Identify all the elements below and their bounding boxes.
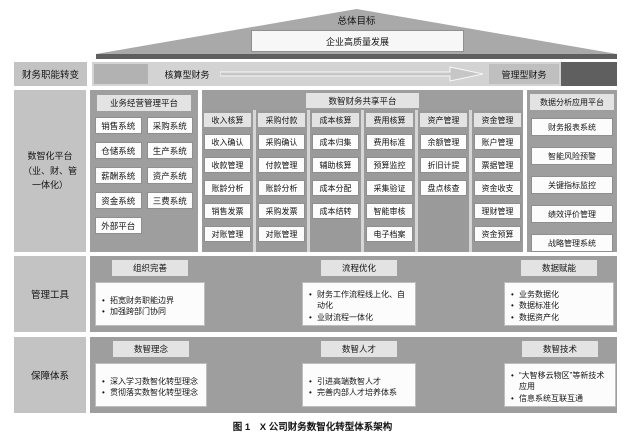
overall-goal-label: 总体目标 — [96, 13, 617, 27]
function-shift-bar: 核算型财务 管理型财务 — [92, 62, 617, 86]
bullet-item: 完善内部人才培养体系 — [309, 387, 411, 398]
shared-column-header: 资金管理 — [474, 113, 521, 127]
bullet-item: 信息系统互联互通 — [511, 393, 611, 404]
roof-beam — [96, 54, 617, 59]
tools-group-box: 拓宽财务职能边界 加强跨部门协同 — [95, 282, 205, 326]
bullet-item: 数据资产化 — [511, 312, 609, 323]
shared-item: 收款管理 — [204, 157, 251, 173]
accounting-finance-label: 核算型财务 — [152, 62, 222, 86]
shared-column-header: 资产管理 — [420, 113, 467, 127]
shared-item: 资金预算 — [474, 226, 521, 242]
shared-column-asset: 资产管理 余额管理 折旧计提 盘点核查 — [418, 110, 469, 252]
bullet-item: 业务数据化 — [511, 289, 609, 300]
shared-item: 智能审核 — [366, 203, 413, 219]
guarantee-group-title: 数智人才 — [321, 341, 397, 357]
shared-item: 账户管理 — [474, 134, 521, 150]
bullet-item: 业财流程一体化 — [309, 312, 411, 323]
data-item: 智能风险预警 — [531, 147, 613, 165]
platform-side-line: 数智化平台 — [23, 149, 77, 163]
shared-platform-title: 数智财务共享平台 — [306, 93, 419, 108]
figure-page: 总体目标 企业高质量发展 财务职能转变 核算型财务 管理型财务 数智化平台 （业… — [0, 0, 625, 439]
tools-group-box: 业务数据化 数据标准化 数据资产化 — [504, 282, 614, 326]
business-item: 采购系统 — [147, 117, 194, 134]
shared-item: 电子档案 — [366, 226, 413, 242]
business-platform-title: 业务经营管理平台 — [97, 95, 191, 111]
shared-column-header: 收入核算 — [204, 113, 251, 127]
shared-item: 成本分配 — [312, 180, 359, 196]
bullet-item: 财务工作流程线上化、自动化 — [309, 289, 411, 311]
shared-item: 账龄分析 — [204, 180, 251, 196]
shared-item: 成本结转 — [312, 203, 359, 219]
guarantee-group-title: 数智技术 — [522, 341, 598, 357]
guarantee-group-technology: 数智技术 “大智移云物区”等新技术应用 信息系统互联互通 — [504, 337, 616, 413]
platform-side-label: 数智化平台 （业、财、管 一体化） — [14, 90, 86, 252]
business-item: 仓储系统 — [95, 142, 142, 159]
business-item: 薪酬系统 — [95, 167, 142, 184]
tools-side-label: 管理工具 — [14, 256, 86, 332]
shared-item: 成本归集 — [312, 134, 359, 150]
function-shift-side-label: 财务职能转变 — [14, 62, 87, 86]
business-items-grid: 销售系统 采购系统 仓储系统 生产系统 薪酬系统 资产系统 资金系统 三费系统 … — [95, 117, 193, 234]
shared-item: 对账管理 — [204, 226, 251, 242]
bullet-item: 数据标准化 — [511, 300, 609, 311]
shared-item: 资金收支 — [474, 180, 521, 196]
tools-group-data: 数据赋能 业务数据化 数据标准化 数据资产化 — [504, 256, 614, 332]
tools-group-title: 数据赋能 — [521, 260, 597, 276]
business-platform-panel: 业务经营管理平台 销售系统 采购系统 仓储系统 生产系统 薪酬系统 资产系统 资… — [90, 90, 198, 252]
shared-item: 预算监控 — [366, 157, 413, 173]
shared-item: 辅助核算 — [312, 157, 359, 173]
shared-column-header: 采购付款 — [258, 113, 305, 127]
business-item: 外部平台 — [95, 217, 142, 234]
bullet-item: 拓宽财务职能边界 — [102, 295, 200, 306]
guarantee-group-concept: 数智理念 深入学习数智化转型理念 贯彻落实数智化转型理念 — [95, 337, 207, 413]
management-finance-label: 管理型财务 — [489, 64, 559, 84]
shared-item: 账龄分析 — [258, 180, 305, 196]
shift-start-block — [94, 64, 148, 84]
shared-item: 销售发票 — [204, 203, 251, 219]
shared-item: 采购确认 — [258, 134, 305, 150]
business-item: 资产系统 — [147, 167, 194, 184]
shift-end-block — [561, 62, 617, 86]
data-item: 财务报表系统 — [531, 118, 613, 136]
shared-column-procurement: 采购付款 采购确认 付款管理 账龄分析 采购发票 对账管理 — [256, 110, 307, 252]
shared-item: 折旧计提 — [420, 157, 467, 173]
data-item: 战略管理系统 — [531, 234, 613, 252]
tools-group-title: 流程优化 — [321, 260, 397, 276]
right-arrow-icon — [220, 65, 486, 83]
shared-item: 对账管理 — [258, 226, 305, 242]
business-item: 三费系统 — [147, 192, 194, 209]
guarantee-side-label: 保障体系 — [14, 337, 86, 413]
platform-side-line: 一体化） — [23, 178, 77, 192]
shared-item: 票据管理 — [474, 157, 521, 173]
bullet-item: 贯彻落实数智化转型理念 — [102, 387, 202, 398]
bullet-item: 深入学习数智化转型理念 — [102, 376, 202, 387]
guarantee-group-title: 数智理念 — [113, 341, 189, 357]
guarantee-group-box: 深入学习数智化转型理念 贯彻落实数智化转型理念 — [95, 363, 207, 407]
business-item: 资金系统 — [95, 192, 142, 209]
tools-group-title: 组织完善 — [112, 260, 188, 276]
shared-item: 付款管理 — [258, 157, 305, 173]
shared-item: 采购发票 — [258, 203, 305, 219]
shared-item: 收入确认 — [204, 134, 251, 150]
tools-group-box: 财务工作流程线上化、自动化 业财流程一体化 — [302, 282, 416, 326]
shared-column-expense: 费用核算 费用标准 预算监控 采集验证 智能审核 电子档案 — [364, 110, 415, 252]
data-platform-panel: 数据分析应用平台 财务报表系统 智能风险预警 关键指标监控 绩效评价管理 战略管… — [527, 90, 617, 252]
data-item: 绩效评价管理 — [531, 205, 613, 223]
shared-column-revenue: 收入核算 收入确认 收款管理 账龄分析 销售发票 对账管理 — [202, 110, 253, 252]
business-item: 销售系统 — [95, 117, 142, 134]
goal-box: 企业高质量发展 — [251, 30, 464, 52]
guarantee-group-talent: 数智人才 引进高端数智人才 完善内部人才培养体系 — [302, 337, 416, 413]
shared-columns: 收入核算 收入确认 收款管理 账龄分析 销售发票 对账管理 采购付款 采购确认 … — [202, 110, 523, 252]
shared-item: 理财管理 — [474, 203, 521, 219]
figure-caption: 图 1 X 公司财务数智化转型体系架构 — [0, 419, 625, 433]
shared-item: 盘点核查 — [420, 180, 467, 196]
tools-band: 组织完善 拓宽财务职能边界 加强跨部门协同 流程优化 财务工作流程线上化、自动化… — [90, 256, 617, 332]
shared-item: 费用标准 — [366, 134, 413, 150]
bullet-item: 加强跨部门协同 — [102, 306, 200, 317]
shared-column-capital: 资金管理 账户管理 票据管理 资金收支 理财管理 资金预算 — [472, 110, 523, 252]
shared-column-header: 成本核算 — [312, 113, 359, 127]
tools-group-process: 流程优化 财务工作流程线上化、自动化 业财流程一体化 — [302, 256, 416, 332]
platform-side-line: （业、财、管 — [23, 164, 77, 178]
shared-column-cost: 成本核算 成本归集 辅助核算 成本分配 成本结转 — [310, 110, 361, 252]
shared-column-header: 费用核算 — [366, 113, 413, 127]
guarantee-band: 数智理念 深入学习数智化转型理念 贯彻落实数智化转型理念 数智人才 引进高端数智… — [90, 337, 617, 413]
bullet-item: 引进高端数智人才 — [309, 376, 411, 387]
shared-item: 余额管理 — [420, 134, 467, 150]
shared-platform-panel: 数智财务共享平台 收入核算 收入确认 收款管理 账龄分析 销售发票 对账管理 采… — [202, 90, 523, 252]
bullet-item: “大智移云物区”等新技术应用 — [511, 370, 611, 392]
guarantee-group-box: “大智移云物区”等新技术应用 信息系统互联互通 — [504, 363, 616, 407]
data-platform-items: 财务报表系统 智能风险预警 关键指标监控 绩效评价管理 战略管理系统 — [531, 118, 613, 252]
data-platform-title: 数据分析应用平台 — [530, 94, 614, 110]
data-item: 关键指标监控 — [531, 176, 613, 194]
guarantee-group-box: 引进高端数智人才 完善内部人才培养体系 — [302, 363, 416, 407]
tools-group-organization: 组织完善 拓宽财务职能边界 加强跨部门协同 — [95, 256, 205, 332]
business-item: 生产系统 — [147, 142, 194, 159]
shared-item: 采集验证 — [366, 180, 413, 196]
